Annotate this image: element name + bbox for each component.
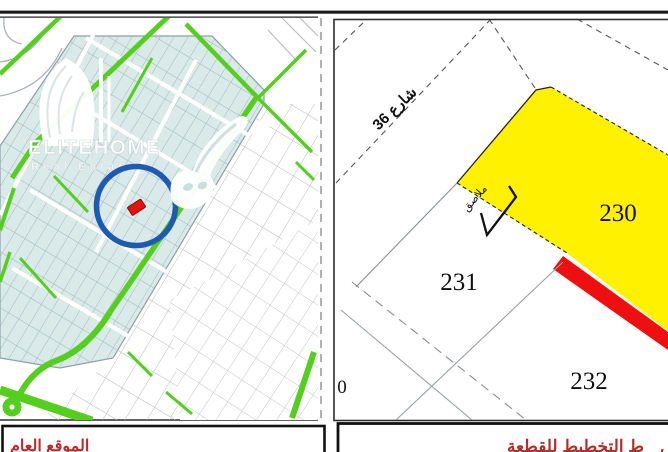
svg-text:0: 0 — [337, 377, 347, 398]
svg-text:232: 232 — [570, 368, 608, 395]
svg-text:ال: ال — [660, 437, 668, 452]
svg-text:ط التخطيط للقطعة: ط التخطيط للقطعة — [507, 437, 644, 452]
svg-text:231: 231 — [440, 269, 478, 296]
svg-text:230: 230 — [599, 200, 637, 227]
svg-text:الموقع العام: الموقع العام — [10, 438, 89, 452]
svg-text:ELITEHOME: ELITEHOME — [28, 136, 161, 159]
